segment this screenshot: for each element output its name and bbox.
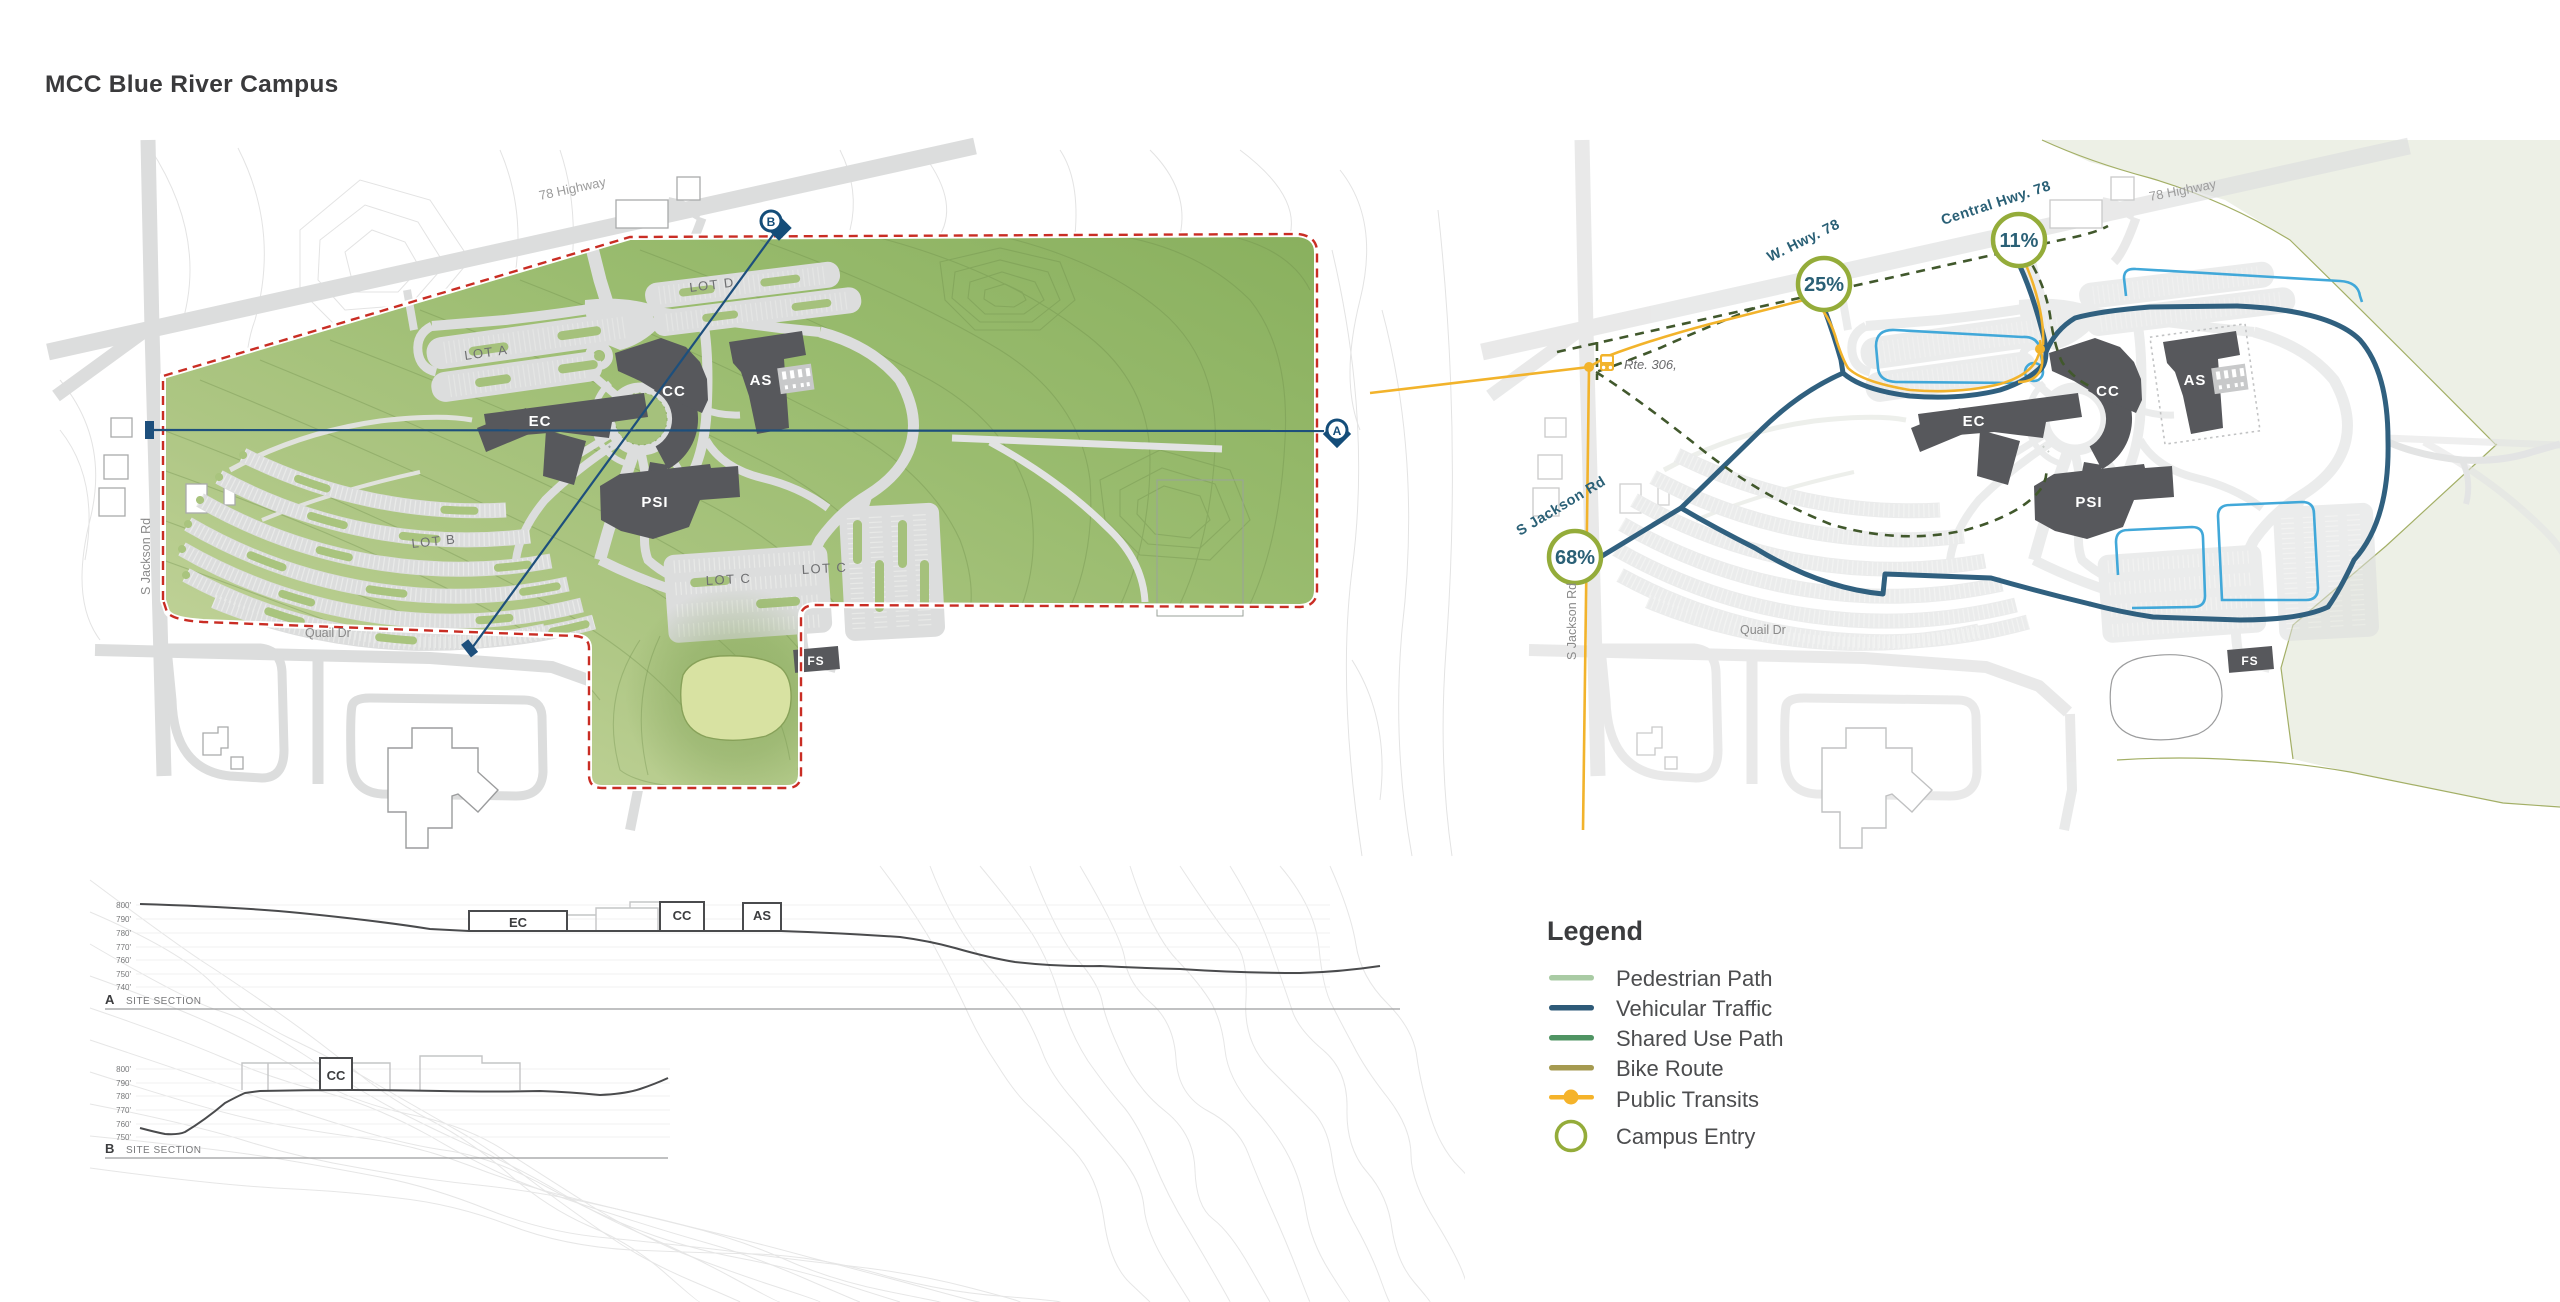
- svg-text:S Jackson Rd: S Jackson Rd: [1565, 583, 1579, 660]
- svg-text:EC: EC: [509, 915, 528, 930]
- svg-text:Public Transits: Public Transits: [1616, 1087, 1759, 1112]
- svg-text:LOT C: LOT C: [801, 560, 847, 577]
- svg-text:Pedestrian Path: Pedestrian Path: [1616, 966, 1773, 991]
- svg-text:B: B: [105, 1141, 114, 1156]
- svg-text:A: A: [1333, 424, 1342, 438]
- svg-text:B: B: [767, 215, 776, 229]
- svg-text:Rte. 306,: Rte. 306,: [1624, 357, 1677, 372]
- svg-text:CC: CC: [327, 1068, 346, 1083]
- svg-text:Shared Use Path: Shared Use Path: [1616, 1026, 1784, 1051]
- svg-text:78 Highway: 78 Highway: [538, 174, 608, 203]
- svg-text:68%: 68%: [1555, 547, 1595, 569]
- svg-text:800': 800': [116, 901, 131, 910]
- svg-text:CC: CC: [673, 908, 692, 923]
- svg-text:Vehicular Traffic: Vehicular Traffic: [1616, 996, 1772, 1021]
- svg-text:760': 760': [116, 1120, 131, 1129]
- svg-text:740': 740': [116, 983, 131, 992]
- svg-text:SITE SECTION: SITE SECTION: [126, 1145, 201, 1156]
- svg-text:770': 770': [116, 943, 131, 952]
- svg-text:750': 750': [116, 1133, 131, 1142]
- svg-text:25%: 25%: [1804, 274, 1844, 296]
- svg-text:Quail Dr: Quail Dr: [305, 626, 351, 640]
- svg-text:780': 780': [116, 1092, 131, 1101]
- svg-text:11%: 11%: [2000, 230, 2039, 252]
- svg-text:790': 790': [116, 915, 131, 924]
- svg-text:MCC Blue River Campus: MCC Blue River Campus: [45, 71, 339, 98]
- svg-text:Campus Entry: Campus Entry: [1616, 1124, 1755, 1149]
- svg-text:SITE SECTION: SITE SECTION: [126, 996, 201, 1007]
- svg-text:780': 780': [116, 929, 131, 938]
- svg-text:760': 760': [116, 956, 131, 965]
- svg-text:750': 750': [116, 970, 131, 979]
- svg-text:790': 790': [116, 1079, 131, 1088]
- svg-text:770': 770': [116, 1106, 131, 1115]
- svg-text:A: A: [105, 992, 115, 1007]
- svg-text:S Jackson Rd: S Jackson Rd: [139, 518, 153, 595]
- svg-text:800': 800': [116, 1065, 131, 1074]
- svg-text:Quail Dr: Quail Dr: [1740, 623, 1786, 637]
- svg-text:Bike Route: Bike Route: [1616, 1056, 1724, 1081]
- svg-text:LOT C: LOT C: [705, 571, 751, 588]
- svg-text:Legend: Legend: [1547, 916, 1643, 946]
- svg-text:AS: AS: [753, 908, 771, 923]
